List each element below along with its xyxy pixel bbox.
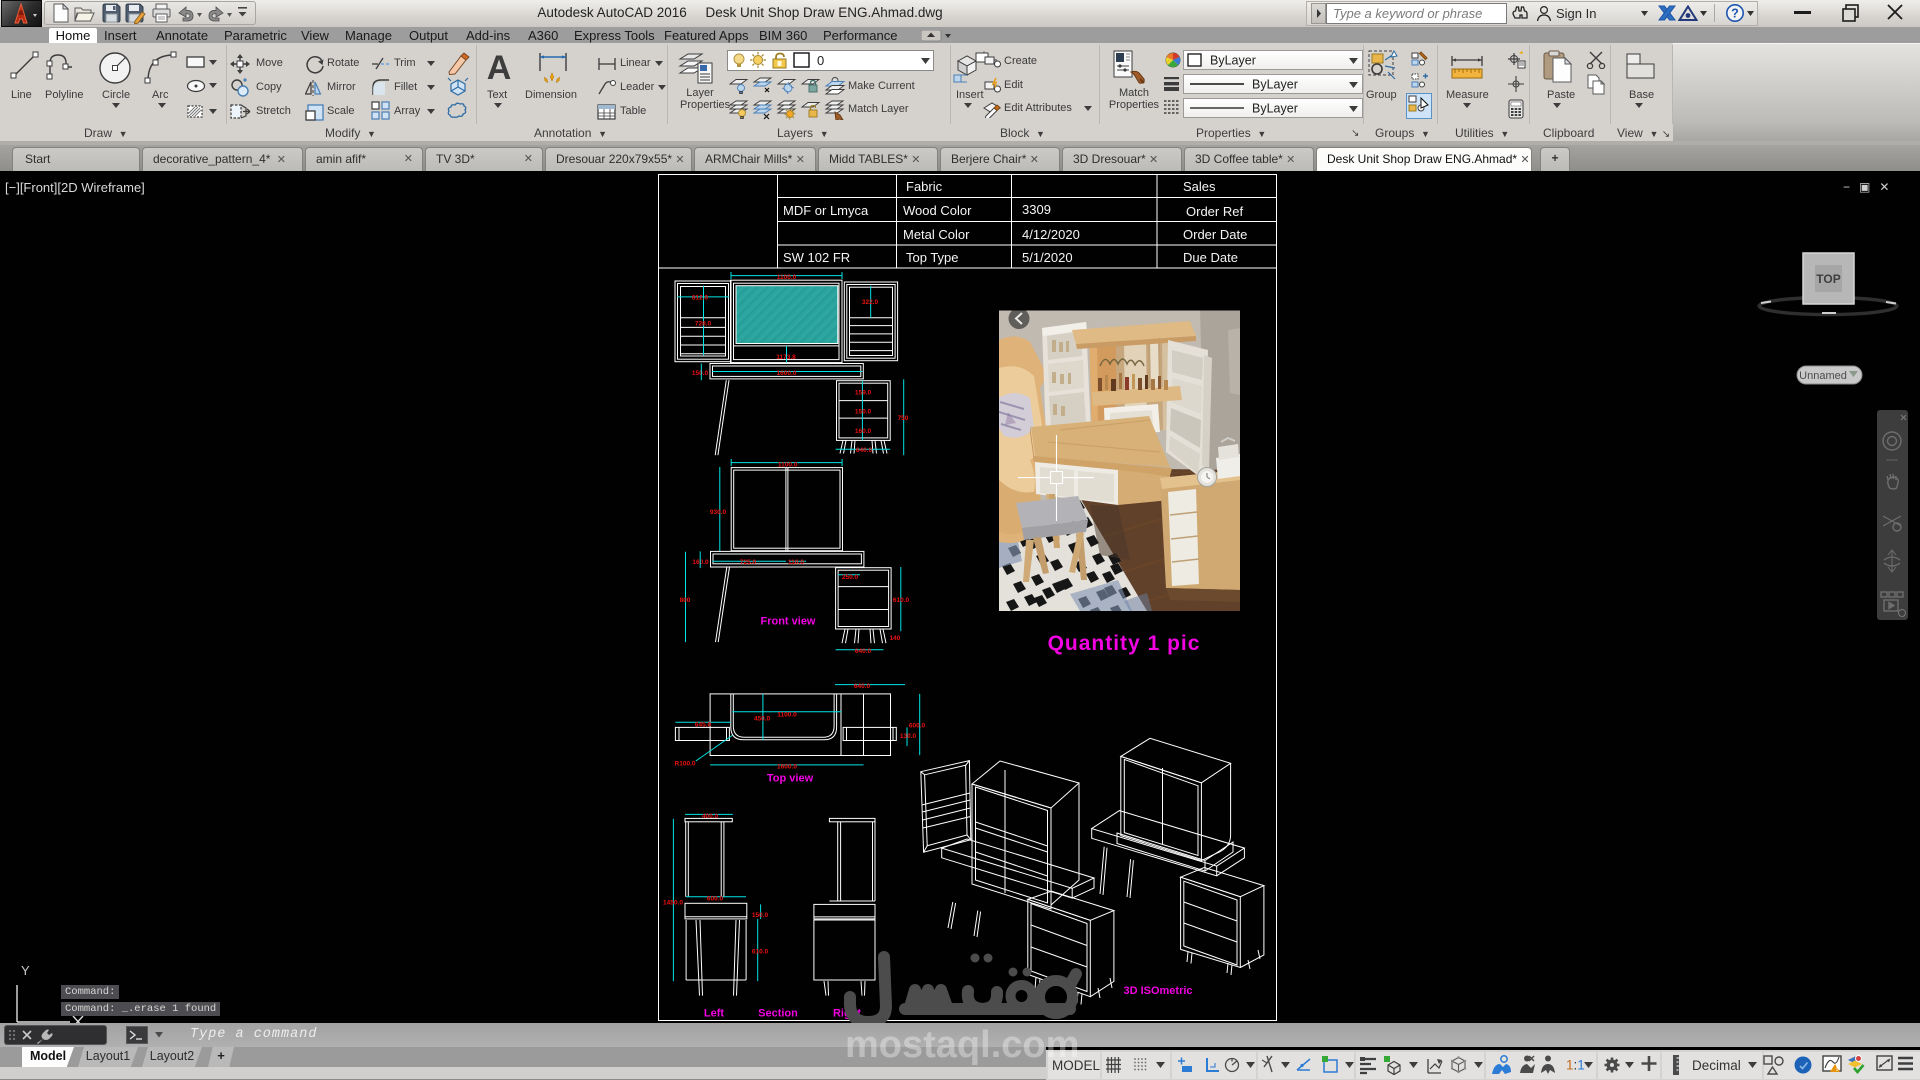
svg-text:Order Ref: Order Ref [1186,204,1243,219]
svg-text:Order Date: Order Date [1183,227,1247,242]
svg-text:MDF or Lmyca: MDF or Lmyca [783,203,869,218]
svg-text:150.0: 150.0 [692,370,709,377]
svg-text:322.0: 322.0 [862,299,879,306]
svg-text:?: ? [1731,7,1739,21]
svg-text:4/12/2020: 4/12/2020 [1022,227,1080,242]
svg-text:1100.0: 1100.0 [777,712,797,719]
svg-text:645.0: 645.0 [695,722,712,729]
svg-text:0: 0 [817,53,824,68]
svg-text:1450.0: 1450.0 [663,900,683,907]
svg-text:Metal Color: Metal Color [903,227,970,242]
svg-text:600.0: 600.0 [707,896,724,903]
svg-text:Wood Color: Wood Color [903,203,972,218]
svg-text:Fabric: Fabric [906,179,943,194]
svg-text:610.0: 610.0 [752,949,769,956]
svg-text:812.0: 812.0 [692,295,709,302]
svg-text:728.0: 728.0 [695,321,712,328]
svg-text:TOP: TOP [1816,272,1840,286]
svg-text:750: 750 [898,415,909,422]
svg-text:400.0: 400.0 [702,813,719,820]
svg-text:450.0: 450.0 [754,716,771,723]
svg-text:930.0: 930.0 [710,509,727,516]
svg-text:Top Type: Top Type [906,250,959,265]
svg-text:600.0: 600.0 [909,723,926,730]
svg-text:140: 140 [890,635,901,642]
svg-text:1:1: 1:1 [1566,1058,1585,1073]
svg-text:159.0: 159.0 [855,390,872,397]
svg-text:130.0: 130.0 [900,733,917,740]
svg-text:150.0: 150.0 [752,912,769,919]
svg-text:Due Date: Due Date [1183,250,1238,265]
svg-text:Decimal: Decimal [1692,1058,1741,1073]
svg-text:Top view: Top view [767,772,814,784]
svg-text:SW 102 FR: SW 102 FR [783,250,850,265]
svg-text:Unnamed: Unnamed [1799,370,1847,382]
svg-text:ByLayer: ByLayer [1210,54,1256,68]
svg-text:640.0: 640.0 [856,447,873,454]
svg-text:Front view: Front view [760,616,815,628]
svg-text:3D ISOmetric: 3D ISOmetric [1123,985,1192,997]
svg-text:Section: Section [758,1008,798,1020]
svg-text:1600.0: 1600.0 [777,764,797,771]
svg-text:250.0: 250.0 [842,574,859,581]
svg-text:!: ! [1836,1066,1838,1073]
svg-text:150.0: 150.0 [855,408,872,415]
svg-text:Y: Y [21,963,30,978]
svg-text:610.0: 610.0 [893,597,910,604]
svg-text:640.0: 640.0 [855,648,872,655]
svg-text:5/1/2020: 5/1/2020 [1022,250,1073,265]
svg-text:Quantity 1 pic: Quantity 1 pic [1048,632,1201,655]
svg-text:1600.0: 1600.0 [777,370,797,377]
svg-text:640.0: 640.0 [854,683,871,690]
svg-text:ByLayer: ByLayer [1252,102,1298,116]
svg-text:110.0: 110.0 [788,559,804,566]
svg-text:ByLayer: ByLayer [1252,78,1298,92]
svg-text:725.0: 725.0 [740,559,757,566]
svg-text:800: 800 [680,597,691,604]
svg-text:R100.0: R100.0 [675,761,696,768]
svg-text:Left: Left [704,1008,725,1020]
svg-text:160.0: 160.0 [855,428,872,435]
svg-text:3309: 3309 [1022,202,1051,217]
svg-text:Sales: Sales [1183,179,1216,194]
